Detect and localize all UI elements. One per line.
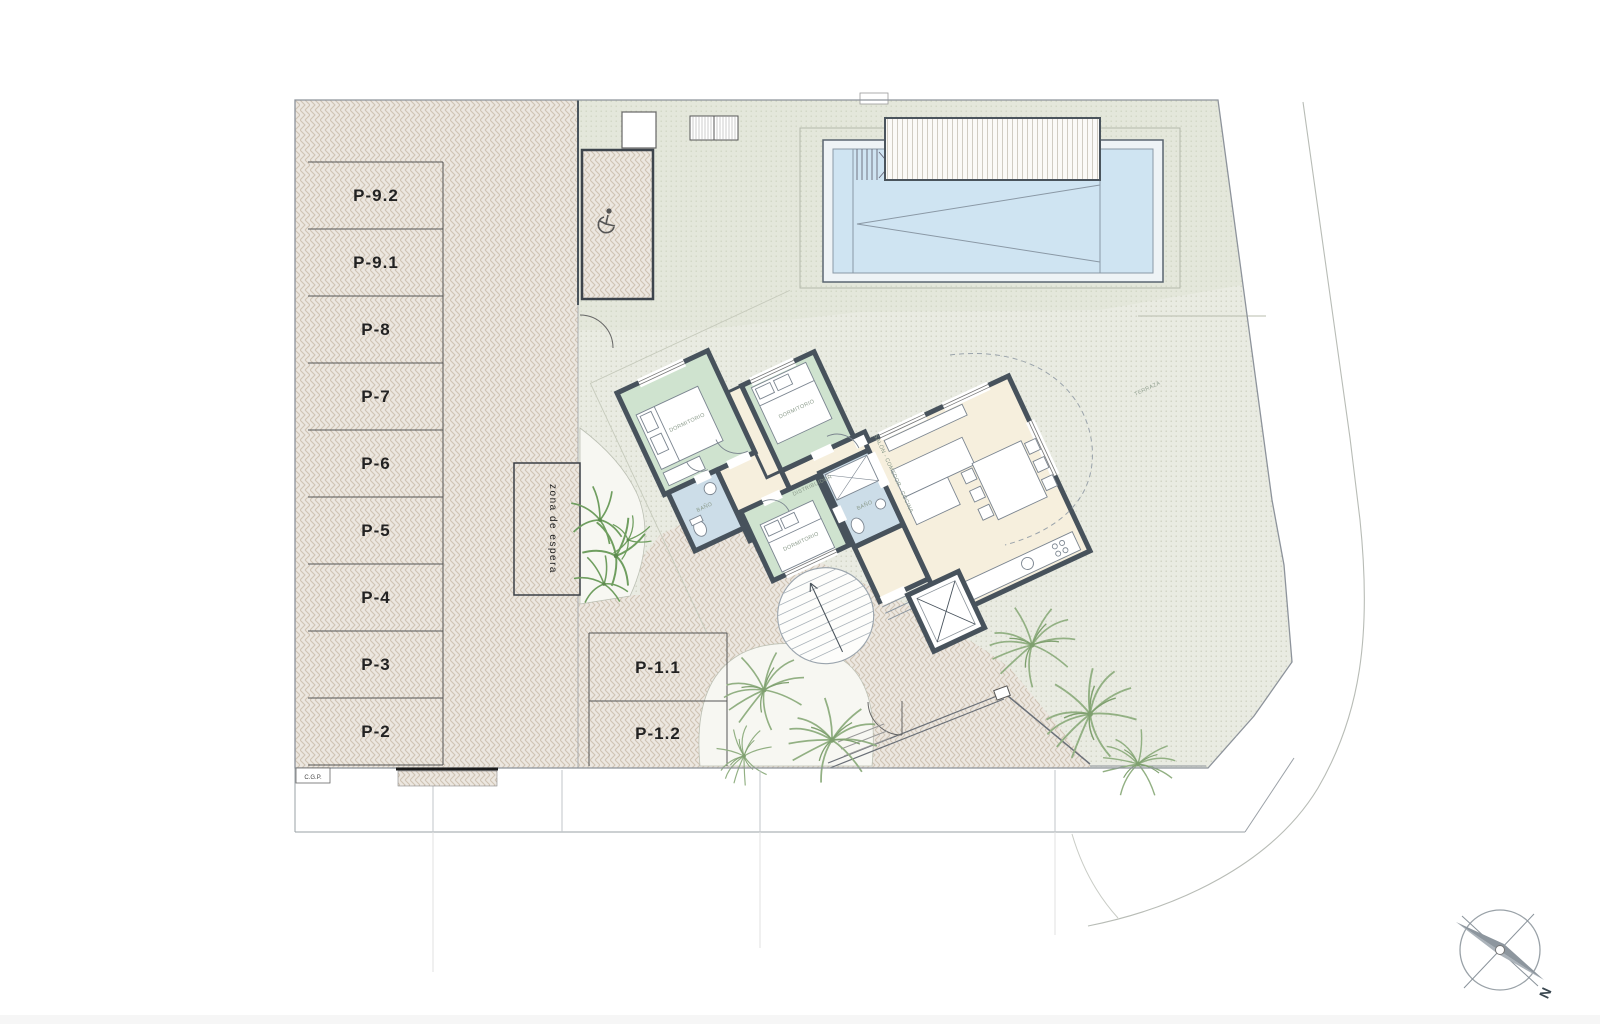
site-plan-canvas: P-1.1 P-1.2 P-9.2 P-9.1 P-8 P-7 P-6 P-5 … bbox=[0, 0, 1600, 1024]
boundary-notch bbox=[860, 93, 888, 104]
parking-stall-label: P-6 bbox=[361, 454, 390, 473]
compass: N bbox=[1456, 910, 1555, 1001]
parking-stall-label: P-4 bbox=[361, 588, 390, 607]
parking-stall-label: P-9.2 bbox=[353, 186, 399, 205]
utility-cabinet bbox=[622, 112, 656, 148]
front-stall-label: P-1.2 bbox=[635, 724, 681, 743]
pool-area bbox=[800, 118, 1180, 288]
sidewalk: C.G.P. bbox=[295, 758, 1294, 972]
waiting-zone: zona de espera bbox=[514, 463, 580, 595]
parking-stall-label: P-8 bbox=[361, 320, 390, 339]
parking-stall-label: P-9.1 bbox=[353, 253, 399, 272]
front-stall-label: P-1.1 bbox=[635, 658, 681, 677]
bottom-strip bbox=[0, 1015, 1600, 1024]
pergola bbox=[885, 118, 1100, 180]
parking-stall-label: P-5 bbox=[361, 521, 390, 540]
utility-box-label: C.G.P. bbox=[304, 775, 322, 781]
parking-stall-label: P-3 bbox=[361, 655, 390, 674]
parking-stall-label: P-2 bbox=[361, 722, 390, 741]
parking-strip-paving bbox=[295, 100, 578, 768]
waiting-zone-label: zona de espera bbox=[547, 484, 558, 574]
site-plan-drawing: P-1.1 P-1.2 P-9.2 P-9.1 P-8 P-7 P-6 P-5 … bbox=[0, 0, 1600, 1024]
parking-stall-label: P-7 bbox=[361, 387, 390, 406]
grate bbox=[690, 116, 738, 140]
accessible-stall bbox=[582, 150, 653, 299]
north-label: N bbox=[1536, 985, 1555, 1001]
